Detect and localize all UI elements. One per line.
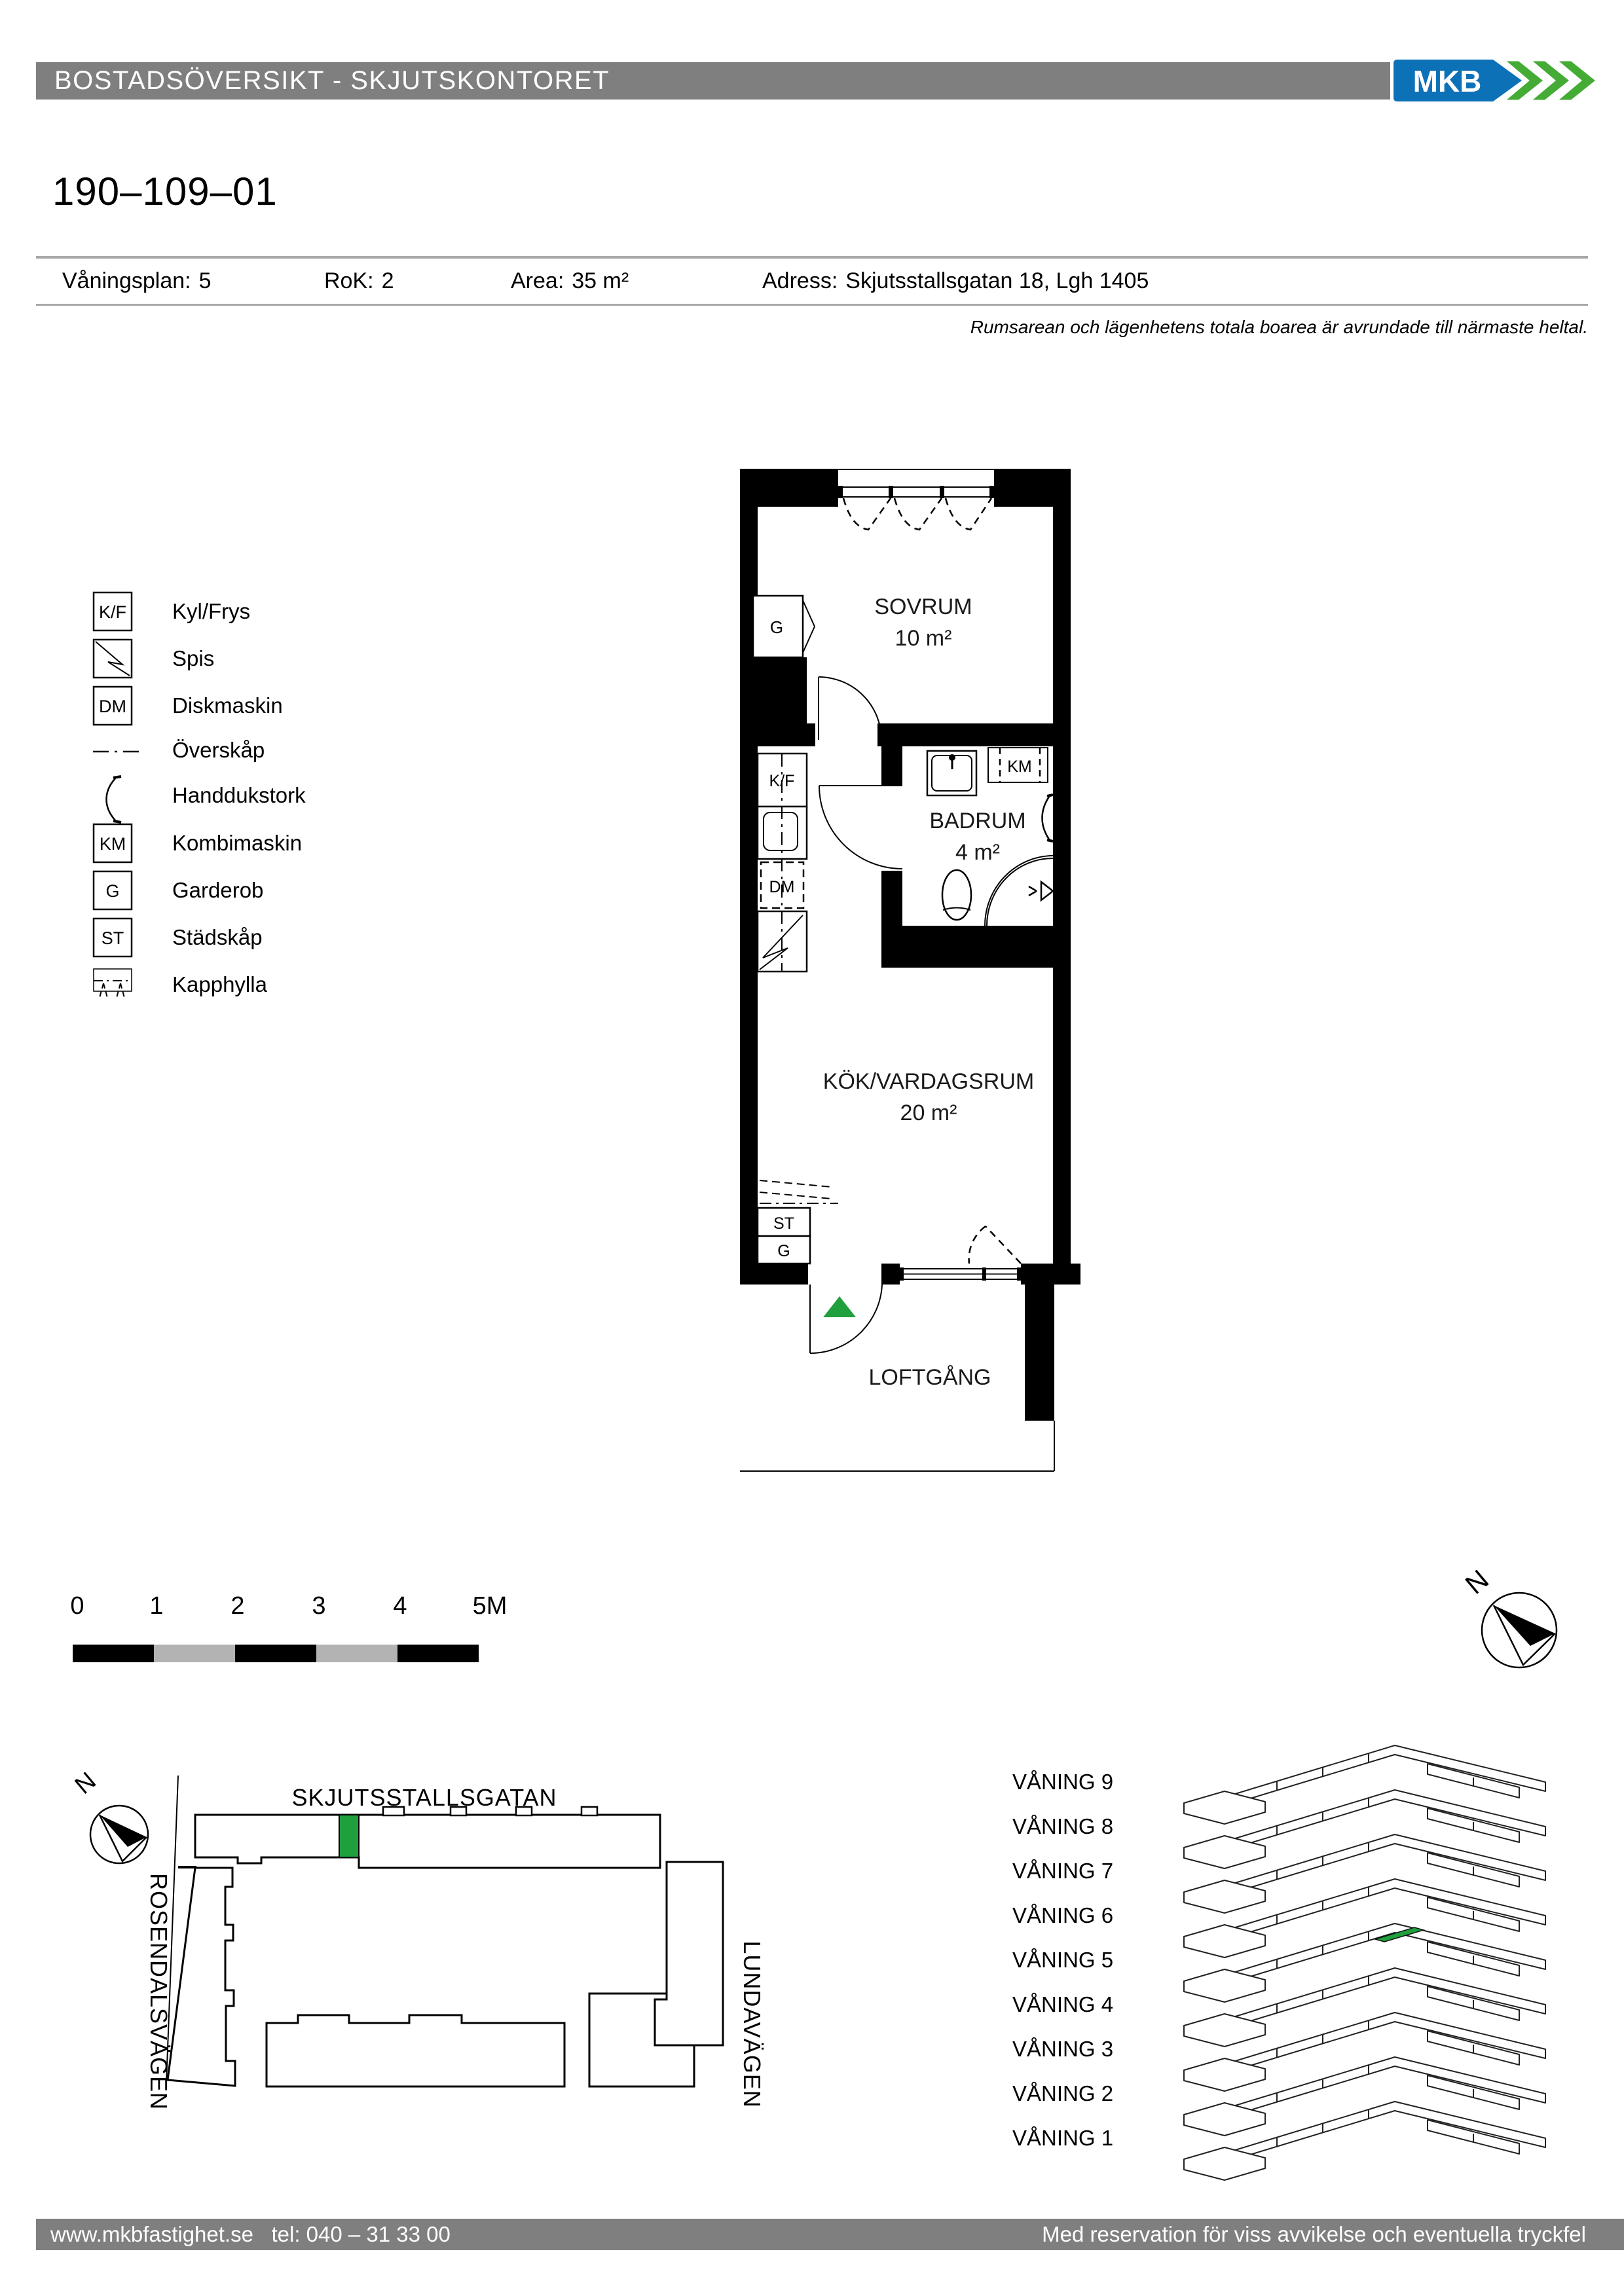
room-area-kok: 20 m² [900, 1101, 957, 1125]
street-lundavagen: LUNDAVÄGEN [739, 1941, 766, 2107]
room-area-sovrum: 10 m² [895, 626, 952, 651]
floor-level-5: VÅNING 5 [1012, 1948, 1113, 1973]
svg-text:N: N [1460, 1568, 1494, 1600]
svg-text:N: N [70, 1767, 101, 1800]
floor-level-8: VÅNING 8 [1012, 1814, 1113, 1839]
divider [36, 256, 1588, 259]
sitemap-buildings [166, 1776, 723, 2086]
st-box-icon: ST [92, 917, 134, 958]
room-label-badrum: BADRUM [929, 809, 1025, 833]
sitemap-highlight-unit [339, 1815, 359, 1857]
field-floor: Våningsplan:5 [62, 268, 212, 294]
legend-item-spis: Spis [84, 638, 673, 680]
g-box-icon: G [92, 869, 134, 911]
room-label-kok: KÖK/VARDAGSRUM [823, 1069, 1034, 1094]
kf-box-icon: K/F [92, 591, 134, 632]
floorplan: G K/F DM KM [727, 455, 1080, 1489]
logo-text: MKB [1413, 64, 1482, 98]
footer-bar: www.mkbfastighet.se tel: 040 – 31 33 00 … [36, 2219, 1624, 2250]
room-area-badrum: 4 m² [955, 840, 1000, 865]
divider [36, 304, 1588, 306]
header-title: BOSTADSÖVERSIKT - SKJUTSKONTORET [36, 62, 1390, 100]
dm-box-icon: DM [92, 685, 134, 727]
floor-level-2: VÅNING 2 [1012, 2081, 1113, 2106]
svg-text:DM: DM [99, 697, 126, 716]
sovrum-window [838, 469, 994, 530]
footer-contact: www.mkbfastighet.se tel: 040 – 31 33 00 [36, 2222, 451, 2247]
info-row: Våningsplan:5 RoK:2 Area:35 m² Adress:Sk… [36, 264, 1588, 299]
legend-item-diskmaskin: DM Diskmaskin [84, 685, 673, 727]
toilet [942, 870, 971, 920]
towel-rail-icon [92, 774, 134, 824]
room-label-sovrum: SOVRUM [874, 594, 972, 619]
entrance-door [810, 1285, 882, 1353]
legend-item-handdukstork: Handdukstork [84, 774, 673, 816]
footer-disclaimer: Med reservation för viss avvikelse och e… [1042, 2222, 1624, 2247]
kok-window [900, 1226, 1021, 1281]
stove-icon [92, 638, 134, 680]
floor-level-6: VÅNING 6 [1012, 1903, 1113, 1928]
header-bar: BOSTADSÖVERSIKT - SKJUTSKONTORET [36, 62, 1390, 100]
svg-text:G: G [777, 1242, 790, 1260]
svg-text:ST: ST [773, 1214, 794, 1233]
floor-level-1: VÅNING 1 [1012, 2126, 1113, 2151]
legend-item-kombimaskin: KM Kombimaskin [84, 822, 673, 864]
legend-item-kylfrys: K/F Kyl/Frys [84, 591, 673, 632]
legend-item-overskap: Överskåp [84, 729, 673, 771]
floor-level-4: VÅNING 4 [1012, 1992, 1113, 2017]
legend-item-kapphylla: Kapphylla [84, 964, 673, 1006]
entrance-marker-icon [823, 1296, 856, 1317]
mkb-logo: MKB [1392, 58, 1610, 103]
sovrum-door [819, 677, 881, 740]
garderob-sovrum: G [753, 596, 815, 657]
sitemap-north-icon: N [70, 1767, 148, 1863]
kitchen-fixtures: K/F DM [758, 754, 807, 972]
svg-text:K/F: K/F [99, 602, 126, 622]
legend-item-stadskap: ST Städskåp [84, 917, 673, 958]
km-box-icon: KM [92, 822, 134, 864]
field-area: Area:35 m² [511, 268, 629, 294]
svg-text:KM: KM [100, 834, 126, 854]
scale-bar: 0 1 2 3 4 5M [65, 1592, 524, 1671]
svg-text:G: G [770, 617, 783, 637]
badrum-fixtures: KM [927, 748, 1053, 926]
legend-item-garderob: G Garderob [84, 869, 673, 911]
drain-arrow-icon [1041, 882, 1053, 900]
floor-stack-diagram [1179, 1722, 1604, 2239]
apartment-id: 190–109–01 [52, 169, 278, 214]
hall-storage: ST G [758, 1180, 838, 1264]
document-page: BOSTADSÖVERSIKT - SKJUTSKONTORET MKB 190… [0, 0, 1624, 2296]
field-rok: RoK:2 [324, 268, 394, 294]
towel-rail [1043, 797, 1050, 839]
coat-shelf-icon [92, 964, 134, 1006]
loftgang-outline [740, 1421, 1054, 1471]
rounding-note: Rumsarean och lägenhetens totala boarea … [36, 317, 1588, 338]
site-map: N SKJUTSSTALLSGATAN ROSENDALSVÄGEN LUNDA… [59, 1728, 792, 2141]
badrum-door [819, 786, 902, 869]
svg-text:ST: ST [101, 928, 124, 948]
floor-level-7: VÅNING 7 [1012, 1859, 1113, 1884]
floor-level-3: VÅNING 3 [1012, 2037, 1113, 2062]
svg-text:G: G [105, 881, 119, 901]
dashdot-line-icon [92, 729, 144, 771]
floor-level-9: VÅNING 9 [1012, 1770, 1113, 1795]
loftgang-label: LOFTGÅNG [868, 1365, 991, 1390]
north-compass-icon: N [1457, 1568, 1575, 1686]
svg-text:KM: KM [1007, 757, 1032, 776]
field-address: Adress:Skjutsstallsgatan 18, Lgh 1405 [762, 268, 1149, 294]
